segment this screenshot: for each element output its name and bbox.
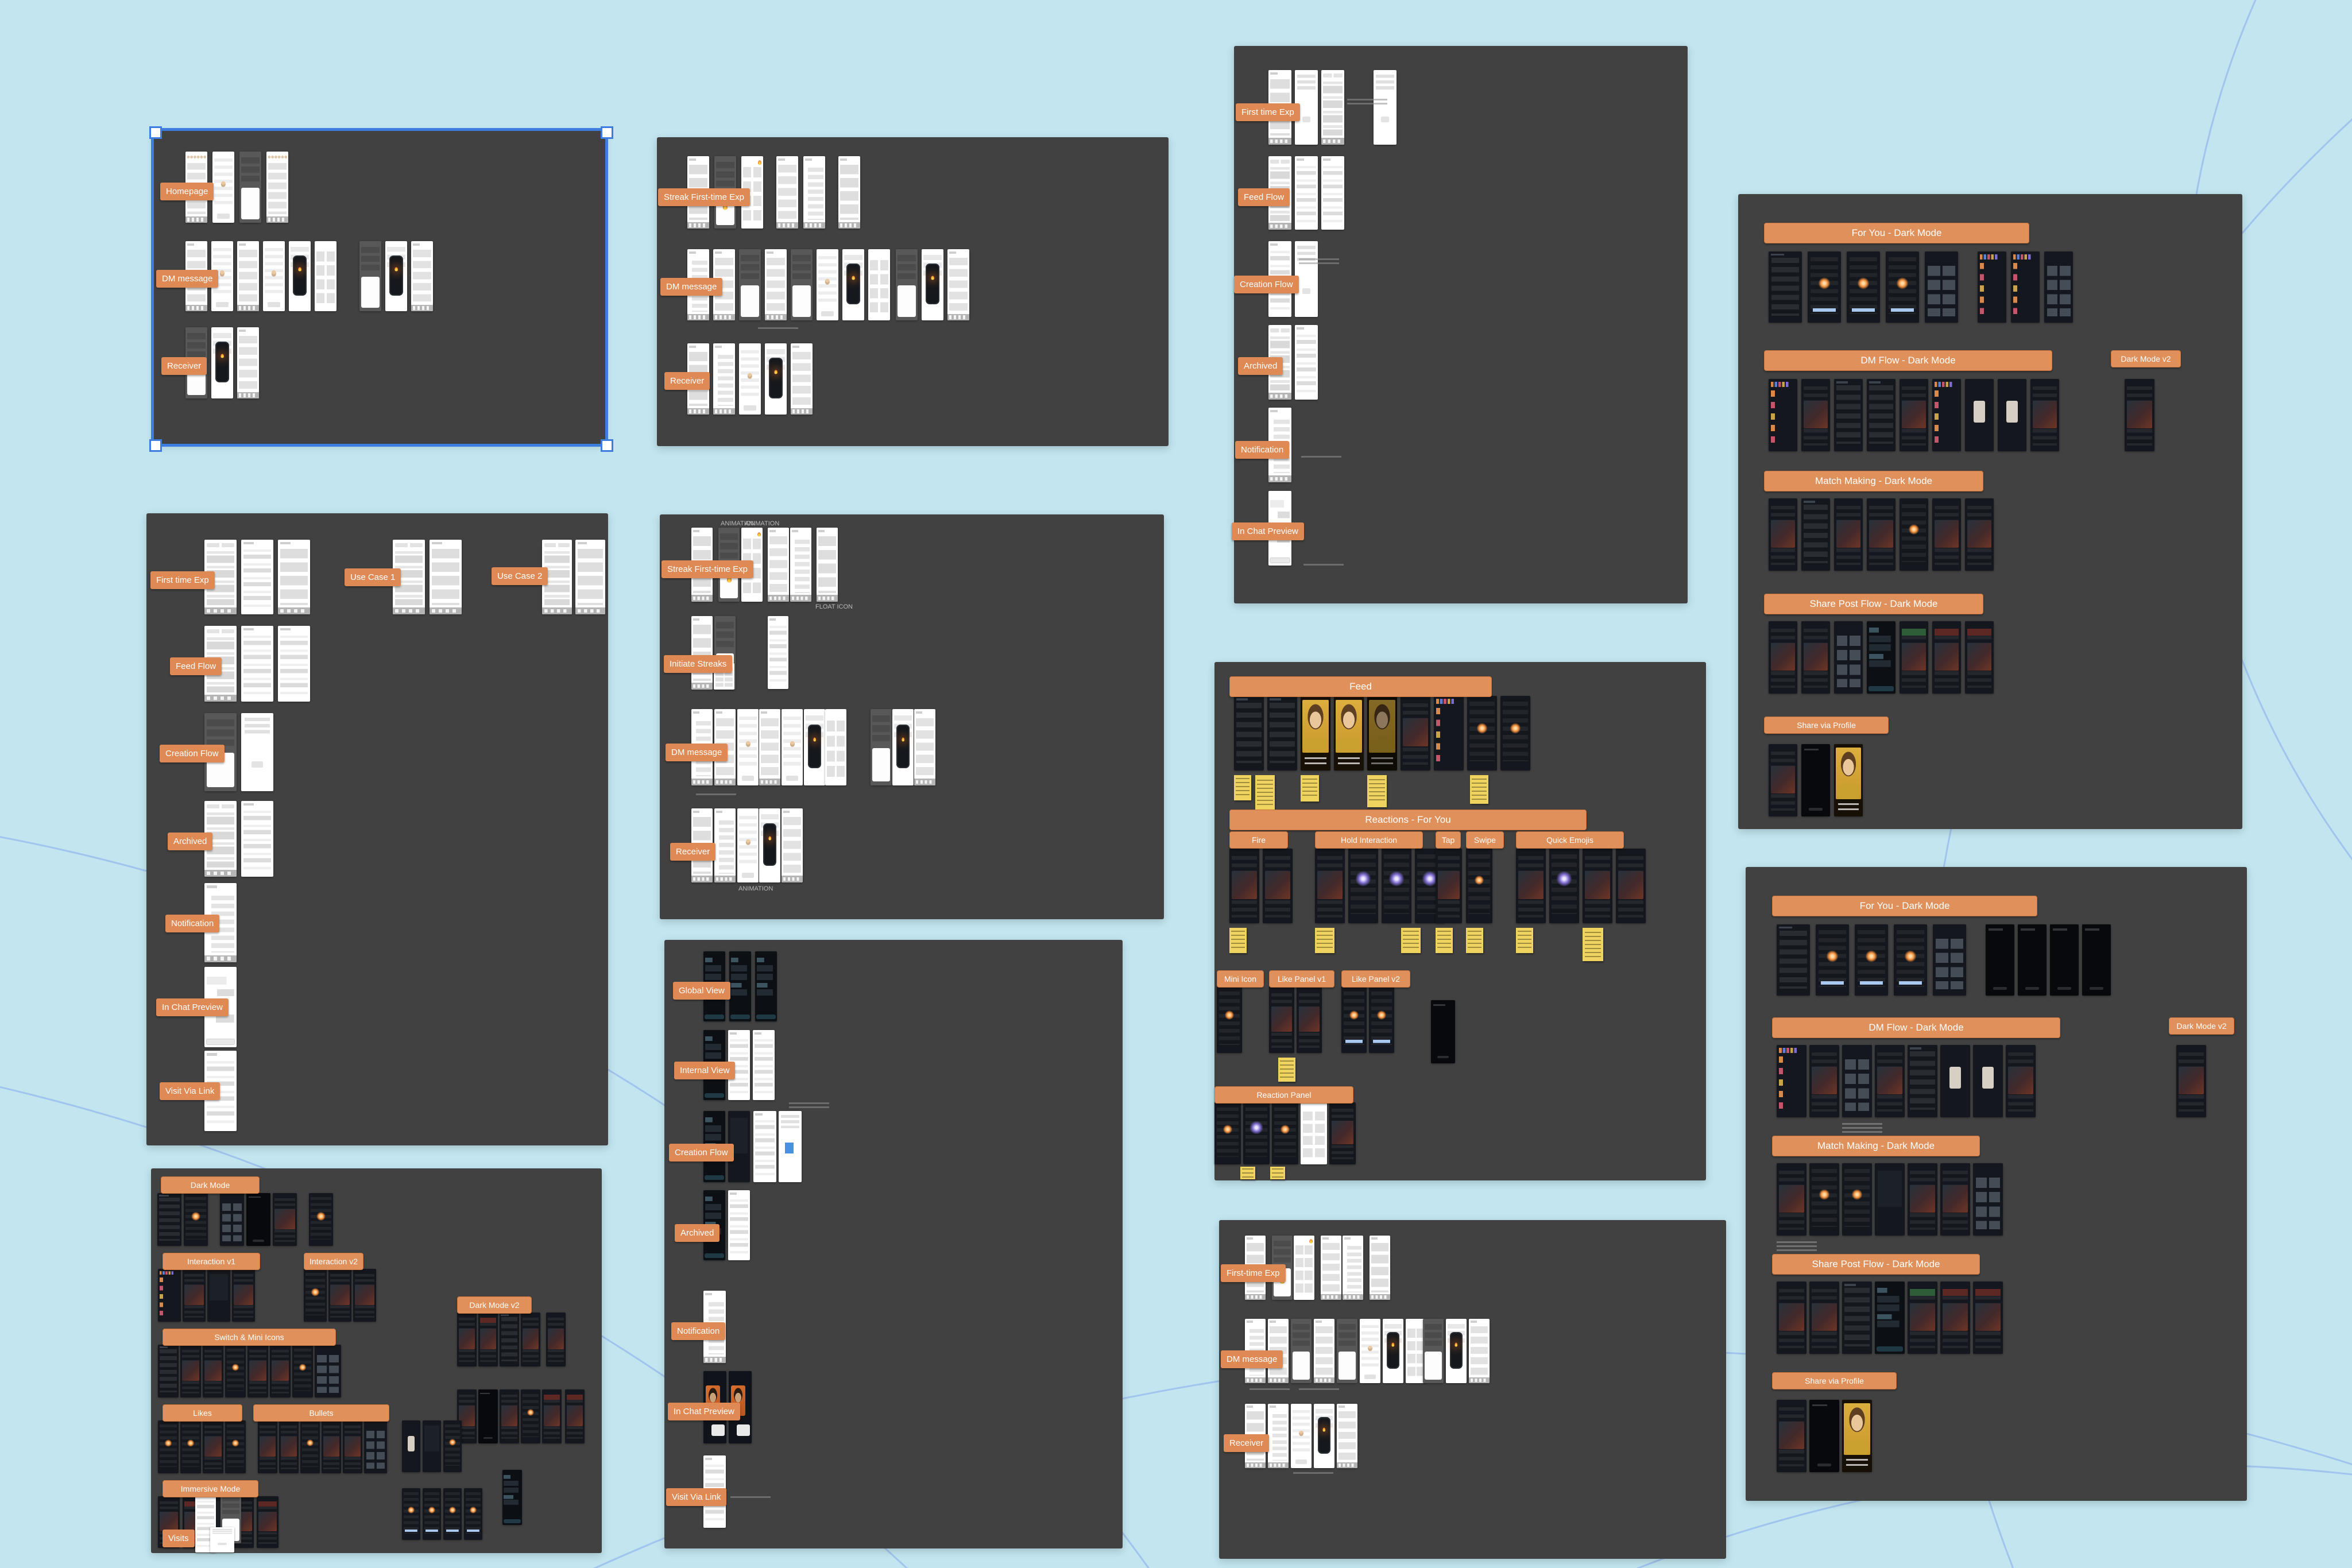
phone-screen-modal-hand[interactable] [212, 152, 234, 223]
phone-screen-dark-blue[interactable] [1855, 924, 1888, 996]
phone-screen-dark-list[interactable] [1234, 696, 1264, 771]
phone-screen-dark-blue[interactable] [464, 1488, 482, 1540]
phone-screen-dark-media[interactable] [322, 1420, 341, 1473]
phone-screen-dark-orb[interactable] [300, 1420, 320, 1473]
phone-screen-dark-media[interactable] [1908, 1163, 1937, 1236]
phone-screen-dark-media[interactable] [546, 1313, 566, 1366]
phone-screen-dark-media[interactable] [2006, 1045, 2036, 1117]
section-header-bar[interactable]: Dark Mode [161, 1176, 260, 1194]
phone-screen-light[interactable] [768, 528, 789, 602]
phone-screen-dark-list[interactable] [500, 1313, 519, 1366]
section-label[interactable]: Archived [675, 1224, 719, 1242]
section-header-bar[interactable]: Switch & Mini Icons [163, 1329, 336, 1346]
phone-screen-light-form[interactable] [241, 801, 273, 877]
section-label[interactable]: In Chat Preview [1232, 522, 1304, 540]
phone-screen-dark-orb-glow[interactable] [1549, 849, 1579, 923]
section-label[interactable]: First time Exp [1236, 103, 1300, 121]
phone-screen-dark-flame[interactable] [1446, 1319, 1467, 1383]
phone-screen-dark-chat[interactable] [1875, 1281, 1905, 1354]
phone-screen-dark-orb[interactable] [1466, 849, 1492, 923]
section-header-bar[interactable]: Reactions - For You [1229, 810, 1587, 830]
phone-screen-photo-dim[interactable] [1367, 696, 1397, 771]
section-header-bar[interactable]: DM Flow - Dark Mode [1772, 1017, 2060, 1038]
section-label[interactable]: Notification [1235, 441, 1289, 459]
phone-screen-dark-media[interactable] [353, 1269, 376, 1322]
phone-screen-dark-media-green[interactable] [1900, 621, 1928, 694]
section-header-bar[interactable]: Dark Mode v2 [2169, 1017, 2234, 1035]
section-label[interactable]: DM message [666, 744, 728, 761]
phone-screen-dark-media[interactable] [1297, 986, 1322, 1053]
phone-screen-dark-list[interactable] [1867, 379, 1895, 451]
phone-screen-dark-media[interactable] [1801, 621, 1830, 694]
section-header-bar[interactable]: Dark Mode v2 [2111, 350, 2181, 367]
phone-screen-dark-blue[interactable] [1894, 924, 1927, 996]
sticky-note[interactable] [1401, 928, 1421, 953]
phone-screen-photo[interactable] [1334, 696, 1364, 771]
phone-screen-black[interactable] [1986, 924, 2014, 996]
section-header-bar[interactable]: Like Panel v2 [1341, 970, 1410, 988]
phone-screen-dark-media[interactable] [1867, 498, 1895, 571]
section-header-bar[interactable]: Interaction v1 [163, 1253, 260, 1270]
phone-screen-dark-media[interactable] [203, 1345, 223, 1397]
phone-screen-dim[interactable] [1291, 1319, 1312, 1383]
phone-screen-dark-blue[interactable] [1369, 986, 1394, 1053]
phone-screen-black[interactable] [246, 1193, 270, 1246]
section-header-bar[interactable]: Quick Emojis [1516, 831, 1624, 849]
selection-handle[interactable] [601, 439, 613, 452]
phone-screen-dark-orb[interactable] [1809, 1163, 1839, 1236]
annotation[interactable] [1842, 1121, 1882, 1135]
phone-screen-light-list[interactable] [713, 343, 735, 415]
phone-screen-light-form[interactable] [278, 626, 310, 702]
phone-screen-photo[interactable] [1842, 1400, 1872, 1472]
sticky-note[interactable] [1466, 928, 1483, 953]
section-label[interactable]: Visit Via Link [160, 1082, 220, 1100]
phone-screen-dark-orb[interactable] [1272, 1102, 1298, 1164]
phone-screen-dark-roster[interactable] [158, 1269, 181, 1322]
annotation[interactable] [1347, 96, 1387, 107]
phone-screen-light-list[interactable] [714, 808, 736, 882]
phone-screen-dark-roster[interactable] [1769, 379, 1797, 451]
annotation[interactable]: FLOAT ICON [815, 603, 853, 611]
phone-screen-light-note[interactable] [210, 1527, 234, 1552]
section-header-bar[interactable]: Immersive Mode [163, 1480, 258, 1497]
phone-screen-dark-media[interactable] [1769, 498, 1797, 571]
phone-screen-light[interactable] [1314, 1319, 1334, 1383]
section-label[interactable]: DM message [156, 270, 218, 288]
section-label[interactable]: DM message [660, 278, 722, 296]
phone-screen-dark-media[interactable] [500, 1389, 519, 1443]
section-label[interactable]: In Chat Preview [156, 998, 229, 1016]
phone-screen-modal-hand[interactable] [1360, 1319, 1380, 1383]
phone-screen-dim[interactable] [239, 152, 261, 223]
phone-screen-black[interactable] [2050, 924, 2079, 996]
annotation[interactable] [1777, 1239, 1817, 1253]
phone-screen-light[interactable] [914, 709, 935, 785]
sticky-note[interactable] [1470, 775, 1488, 804]
section-label[interactable]: Use Case 1 [345, 568, 401, 586]
phone-screen-dark-blue[interactable] [1847, 251, 1880, 323]
phone-screen-dark-media[interactable] [1516, 849, 1546, 923]
annotation[interactable] [758, 325, 798, 331]
phone-screen-light-form[interactable] [1295, 156, 1318, 230]
phone-screen-dark-media[interactable] [1801, 379, 1830, 451]
annotation[interactable] [1249, 1386, 1290, 1392]
phone-screen-dark-portrait[interactable] [1965, 379, 1994, 451]
phone-screen-light[interactable] [411, 241, 433, 311]
phone-screen-light[interactable] [776, 156, 798, 229]
sticky-note[interactable] [1516, 928, 1533, 953]
section-label[interactable]: Streak First-time Exp [661, 560, 753, 578]
annotation[interactable] [1303, 562, 1344, 568]
selection-handle[interactable] [149, 126, 162, 139]
annotation[interactable]: ANIMATION [745, 520, 779, 528]
phone-screen-light-form[interactable] [241, 626, 273, 702]
phone-screen-dark-media[interactable] [203, 1420, 223, 1473]
phone-screen-dark-media-red[interactable] [257, 1496, 278, 1548]
section-header-bar[interactable]: Mini Icon [1217, 970, 1264, 988]
phone-screen-light-form[interactable] [1295, 325, 1318, 400]
phone-screen-dark-media[interactable] [1965, 498, 1994, 571]
phone-screen-dark-grid[interactable] [220, 1193, 244, 1246]
phone-screen-black[interactable] [478, 1389, 498, 1443]
section-header-bar[interactable]: DM Flow - Dark Mode [1764, 350, 2052, 371]
phone-screen-light[interactable] [1469, 1319, 1490, 1383]
phone-screen-dark-blue[interactable] [1886, 251, 1919, 323]
phone-screen-dark-orb[interactable] [184, 1193, 208, 1246]
phone-screen-dark-flame[interactable] [922, 249, 943, 320]
phone-screen-dark-flame[interactable] [842, 249, 864, 320]
phone-screen-dark-dim[interactable] [423, 1420, 441, 1472]
phone-screen-dark-grid[interactable] [315, 1345, 341, 1397]
phone-screen-dark-media[interactable] [1940, 1163, 1970, 1236]
phone-screen-dark-chat[interactable] [755, 951, 777, 1021]
phone-screen-dark-media[interactable] [521, 1313, 540, 1366]
section-label[interactable]: DM message [1221, 1350, 1283, 1368]
phone-screen-dark-grid[interactable] [1973, 1163, 2003, 1236]
phone-screen-light-list[interactable] [1343, 1236, 1363, 1300]
phone-screen-dark-chat[interactable] [502, 1470, 522, 1525]
phone-screen-dark-orb[interactable] [309, 1193, 333, 1246]
section-label[interactable]: Creation Flow [669, 1144, 734, 1162]
phone-screen-dark-orb-glow[interactable] [1382, 849, 1411, 923]
annotation[interactable] [1299, 256, 1339, 266]
phone-screen-dark-media-red[interactable] [1940, 1281, 1970, 1354]
phone-screen-dark-dim[interactable] [1875, 1163, 1905, 1236]
phone-screen-black[interactable] [2082, 924, 2111, 996]
phone-screen-dark-grid[interactable] [364, 1420, 387, 1473]
phone-screen-dark-list[interactable] [1769, 251, 1802, 323]
phone-screen-dark-media[interactable] [247, 1345, 268, 1397]
phone-screen-grid[interactable] [1301, 1102, 1327, 1164]
phone-screen-light-note[interactable] [1374, 70, 1396, 145]
phone-screen-dark-flame[interactable] [804, 709, 825, 785]
selection-handle[interactable] [149, 439, 162, 452]
phone-screen-dark-media[interactable] [1616, 849, 1646, 923]
phone-screen-dark-media[interactable] [1315, 849, 1345, 923]
selection-handle[interactable] [601, 126, 613, 139]
section-header-bar[interactable]: Likes [163, 1404, 242, 1422]
sticky-note[interactable] [1240, 1167, 1255, 1179]
phone-screen-dark-orb[interactable] [158, 1420, 179, 1473]
phone-screen-light-stack[interactable] [278, 540, 310, 614]
sticky-note[interactable] [1301, 775, 1319, 802]
phone-screen-black[interactable] [2018, 924, 2047, 996]
phone-screen-dark-media[interactable] [180, 1345, 201, 1397]
phone-screen-light-form[interactable] [768, 616, 788, 689]
phone-screen-dark-roster[interactable] [2011, 251, 2040, 323]
section-header-bar[interactable]: Fire [1229, 831, 1288, 849]
section-header-bar[interactable]: Reaction Panel [1214, 1086, 1353, 1104]
phone-screen-grid[interactable] [868, 249, 890, 320]
phone-screen-modal-hand[interactable] [737, 808, 759, 882]
phone-screen-dark-media-red[interactable] [478, 1313, 498, 1366]
phone-screen-dark-roster[interactable] [1932, 379, 1961, 451]
phone-screen-dark-media[interactable] [2125, 379, 2154, 451]
phone-screen-dark-media[interactable] [1809, 1281, 1839, 1354]
phone-screen-modal-hand[interactable] [782, 709, 803, 785]
phone-screen-dark-media[interactable] [2176, 1045, 2206, 1117]
phone-screen-dark-portrait[interactable] [1940, 1045, 1970, 1117]
phone-screen-dark-flame[interactable] [759, 808, 780, 882]
phone-screen-dark-media-red[interactable] [1973, 1281, 2003, 1354]
phone-screen-dark-list[interactable] [1908, 1045, 1937, 1117]
phone-screen-dark-media[interactable] [343, 1420, 362, 1473]
sticky-note[interactable] [1278, 1058, 1295, 1082]
phone-screen-dark-flame[interactable] [765, 343, 787, 415]
phone-screen-modal-hand[interactable] [739, 343, 761, 415]
section-header-bar[interactable]: Share Post Flow - Dark Mode [1764, 594, 1983, 614]
phone-screen-photo[interactable] [1301, 696, 1330, 771]
phone-screen-dark-list[interactable] [1801, 498, 1830, 571]
phone-screen-dark-media[interactable] [270, 1345, 291, 1397]
phone-screen-dark-media[interactable] [1769, 621, 1797, 694]
phone-screen-dark-orb[interactable] [1214, 1102, 1241, 1164]
phone-screen-dark-list[interactable] [158, 1345, 179, 1397]
phone-screen-dark-media-red[interactable] [542, 1389, 562, 1443]
phone-screen-dark-roster[interactable] [1777, 1045, 1806, 1117]
phone-screen-dark-flame[interactable] [892, 709, 914, 785]
phone-screen-dark-media[interactable] [1777, 1281, 1806, 1354]
section-label[interactable]: Receiver [664, 372, 710, 390]
phone-screen-dark-grid[interactable] [2044, 251, 2073, 323]
section-header-bar[interactable]: Share via Profile [1764, 717, 1889, 734]
phone-screen-modal-hand[interactable] [263, 241, 285, 311]
phone-screen-grid-flame[interactable] [1294, 1236, 1314, 1300]
phone-screen-dark-blue[interactable] [1816, 924, 1849, 996]
section-header-bar[interactable]: Match Making - Dark Mode [1772, 1136, 1980, 1156]
phone-screen-dark-orb[interactable] [1842, 1163, 1872, 1236]
phone-screen-dark-media[interactable] [2030, 379, 2059, 451]
phone-screen-dark-roster[interactable] [1434, 696, 1464, 771]
annotation[interactable] [730, 1494, 771, 1500]
phone-screen-dark-media[interactable] [1329, 1102, 1356, 1164]
section-header-bar[interactable]: Swipe [1466, 831, 1504, 849]
phone-screen-dim[interactable] [871, 709, 892, 785]
phone-screen-dark-blue[interactable] [1808, 251, 1841, 323]
phone-screen-black[interactable] [1809, 1400, 1839, 1472]
phone-screen-dim[interactable] [1423, 1319, 1444, 1383]
phone-screen-light-form[interactable] [1321, 156, 1344, 230]
phone-screen-dark-orb[interactable] [1900, 498, 1928, 571]
sticky-note[interactable] [1270, 1167, 1285, 1179]
sticky-note[interactable] [1315, 928, 1334, 953]
section-header-bar[interactable]: Hold Interaction [1315, 831, 1423, 849]
phone-screen-dark-media[interactable] [1777, 1400, 1806, 1472]
phone-screen-dark-grid[interactable] [1842, 1045, 1872, 1117]
phone-screen-dark-chat[interactable] [1867, 621, 1895, 694]
section-label[interactable]: Visit Via Link [666, 1488, 726, 1506]
phone-screen-dark-flame[interactable] [1383, 1319, 1403, 1383]
phone-screen-light-form[interactable] [728, 1190, 750, 1260]
phone-screen-dark-chat[interactable] [729, 951, 751, 1021]
phone-screen-dim[interactable] [1337, 1319, 1357, 1383]
phone-screen-light-list[interactable] [803, 156, 825, 229]
phone-screen-dark-flame[interactable] [1314, 1404, 1334, 1468]
phone-screen-dark-media[interactable] [232, 1269, 255, 1322]
section-label[interactable]: Archived [1238, 357, 1283, 375]
phone-screen-dark-media[interactable] [1875, 1045, 1905, 1117]
phone-screen-dim[interactable] [739, 249, 761, 320]
phone-screen-dark-orb[interactable] [304, 1269, 327, 1322]
phone-screen-light-blue-note[interactable] [779, 1111, 802, 1182]
section-label[interactable]: Archived [168, 833, 212, 850]
phone-screen-light[interactable] [1321, 1236, 1341, 1300]
phone-screen-dark-orb-glow[interactable] [1348, 849, 1378, 923]
phone-screen-dark-flame[interactable] [385, 241, 407, 311]
phone-screen-dark-media[interactable] [183, 1269, 206, 1322]
section-label[interactable]: Notification [671, 1322, 725, 1340]
phone-screen-dark-grid[interactable] [1834, 621, 1863, 694]
phone-screen-grid[interactable] [315, 241, 336, 311]
phone-screen-dark-media[interactable] [279, 1420, 299, 1473]
phone-screen-light-stack[interactable] [430, 540, 462, 614]
phone-screen-dark-media[interactable] [1401, 696, 1430, 771]
phone-screen-light[interactable] [765, 249, 787, 320]
phone-screen-dark-orb[interactable] [1217, 986, 1242, 1053]
phone-screen-dark-media[interactable] [258, 1420, 277, 1473]
phone-screen-black[interactable] [1431, 1000, 1455, 1063]
phone-screen-dark-media[interactable] [328, 1269, 351, 1322]
phone-screen-modal-hand[interactable] [1291, 1404, 1312, 1468]
section-label[interactable]: Receiver [1224, 1434, 1269, 1452]
phone-screen-dark-grid[interactable] [1933, 924, 1966, 996]
phone-screen-dark-media[interactable] [1269, 986, 1294, 1053]
phone-screen-dark-media[interactable] [1834, 498, 1863, 571]
annotation[interactable] [1299, 1386, 1339, 1392]
phone-screen-dark-orb[interactable] [225, 1345, 246, 1397]
phone-screen-dark-portrait[interactable] [402, 1420, 420, 1472]
section-label[interactable]: First-time Exp [1221, 1264, 1286, 1282]
phone-screen-light-feed[interactable] [1321, 70, 1344, 145]
phone-screen-light-stack[interactable] [575, 540, 605, 614]
phone-screen-dim[interactable] [896, 249, 918, 320]
phone-screen-dark-orb[interactable] [180, 1420, 201, 1473]
section-header-bar[interactable]: Share Post Flow - Dark Mode [1772, 1254, 1980, 1275]
phone-screen-dark-dim[interactable] [207, 1269, 230, 1322]
phone-screen-dark-media[interactable] [1229, 849, 1259, 923]
sticky-note[interactable] [1583, 928, 1603, 961]
phone-screen-dark-blue[interactable] [402, 1488, 420, 1540]
section-label[interactable]: In Chat Preview [668, 1403, 740, 1420]
section-label[interactable]: First time Exp [150, 571, 215, 589]
phone-screen-dark-roster[interactable] [1978, 251, 2006, 323]
annotation[interactable] [1301, 454, 1341, 460]
phone-screen-dark-flame[interactable] [211, 327, 233, 398]
phone-screen-dark-flame[interactable] [289, 241, 311, 311]
phone-screen-light[interactable] [947, 249, 969, 320]
phone-screen-dark-orb[interactable] [225, 1420, 246, 1473]
phone-screen-dark-orb[interactable] [1467, 696, 1497, 771]
sticky-note[interactable] [1367, 775, 1387, 807]
phone-screen-dark-media-red[interactable] [565, 1389, 585, 1443]
phone-screen-photo[interactable] [1834, 744, 1863, 816]
section-label[interactable]: Homepage [160, 183, 214, 200]
sticky-note[interactable] [1255, 775, 1275, 812]
phone-screen-modal-hand[interactable] [737, 709, 759, 785]
section-header-bar[interactable]: Bullets [253, 1404, 389, 1422]
phone-screen-grid[interactable] [825, 709, 846, 785]
section-label[interactable]: Creation Flow [160, 745, 225, 762]
phone-screen-dark-blue[interactable] [443, 1488, 462, 1540]
section-label[interactable]: Creation Flow [1234, 276, 1299, 293]
phone-screen-light-stack[interactable] [817, 528, 838, 602]
phone-screen-dark-list[interactable] [1842, 1281, 1872, 1354]
annotation[interactable] [1293, 1470, 1333, 1476]
section-header-bar[interactable]: Dark Mode v2 [457, 1296, 532, 1314]
section-header-bar[interactable]: For You - Dark Mode [1764, 223, 2029, 243]
section-label[interactable]: Global View [673, 982, 730, 1000]
section-label[interactable]: Feed Flow [1238, 188, 1290, 206]
phone-screen-light-tabs[interactable] [266, 152, 288, 223]
phone-screen-dark-media[interactable] [273, 1193, 297, 1246]
phone-screen-dark-list[interactable] [1267, 696, 1297, 771]
phone-screen-dark-orb-glow[interactable] [1243, 1102, 1270, 1164]
phone-screen-dark-media-green[interactable] [1908, 1281, 1937, 1354]
phone-screen-dark-media[interactable] [1583, 849, 1612, 923]
section-label[interactable]: Streak First-time Exp [658, 188, 750, 206]
phone-screen-dark-orb[interactable] [443, 1420, 462, 1472]
section-header-bar[interactable]: Tap [1436, 831, 1461, 849]
sticky-note[interactable] [1234, 775, 1251, 800]
phone-screen-dark-media[interactable] [1900, 379, 1928, 451]
phone-screen-dark-media[interactable] [1932, 498, 1961, 571]
phone-screen-light-form[interactable] [753, 1030, 775, 1100]
phone-screen-light[interactable] [237, 241, 259, 311]
phone-screen-light-stack[interactable] [1370, 1236, 1390, 1300]
section-header-bar[interactable]: Interaction v2 [304, 1253, 363, 1270]
phone-screen-dark-portrait[interactable] [1973, 1045, 2003, 1117]
section-header-bar[interactable]: Feed [1229, 676, 1492, 697]
section-header-bar[interactable]: Match Making - Dark Mode [1764, 471, 1983, 491]
section-header-bar[interactable]: Share via Profile [1772, 1372, 1897, 1389]
phone-screen-dark-orb[interactable] [1500, 696, 1530, 771]
phone-screen-dim[interactable] [791, 249, 813, 320]
phone-screen-dim[interactable] [359, 241, 381, 311]
section-label[interactable]: Feed Flow [170, 657, 222, 675]
phone-screen-dark-grid[interactable] [1925, 251, 1958, 323]
phone-screen-dark-media[interactable] [1436, 849, 1462, 923]
phone-screen-light-form[interactable] [753, 1111, 776, 1182]
phone-screen-dark-orb[interactable] [292, 1345, 313, 1397]
phone-screen-light[interactable] [759, 709, 780, 785]
phone-screen-light-note[interactable] [241, 713, 273, 791]
phone-screen-dark-list[interactable] [1834, 379, 1863, 451]
sticky-note[interactable] [1229, 928, 1247, 953]
section-label[interactable]: Receiver [161, 357, 207, 375]
sticky-note[interactable] [1436, 928, 1453, 953]
phone-screen-dark-media[interactable] [1809, 1045, 1839, 1117]
